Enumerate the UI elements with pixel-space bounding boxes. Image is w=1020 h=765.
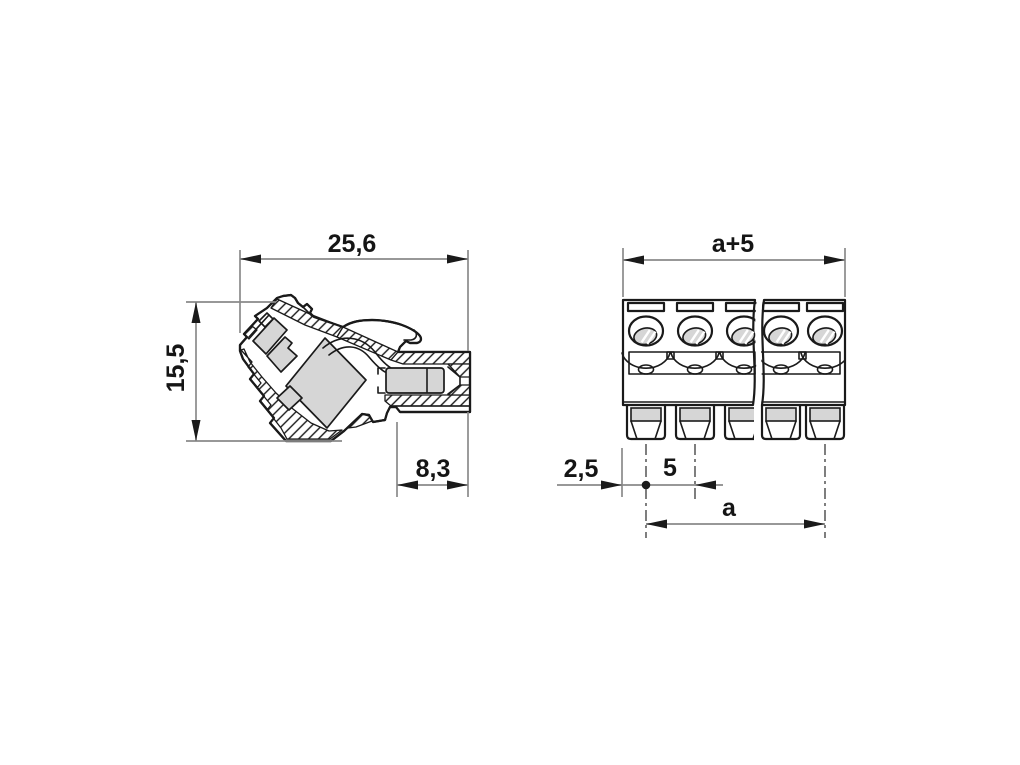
side-view <box>240 295 470 441</box>
contact-gray <box>386 368 444 393</box>
dim-label-plug-depth: 8,3 <box>416 455 451 483</box>
foot-slant <box>810 421 816 439</box>
foot-slant <box>729 421 735 439</box>
dimension-overall-width: a+5 <box>623 230 845 297</box>
foot-slant <box>790 421 796 439</box>
dimension-plug-depth: 8,3 <box>397 422 468 497</box>
arrowhead <box>646 520 667 529</box>
dimension-edge-offset-and-pitch: 2,5 5 <box>557 448 723 497</box>
dim-label-height: 15,5 <box>162 344 190 393</box>
foot-shade <box>631 408 661 421</box>
foot-shade <box>810 408 840 421</box>
dim-label-edge-offset: 2,5 <box>564 455 599 483</box>
dim-label-width: 25,6 <box>328 230 377 258</box>
arrowhead <box>804 520 825 529</box>
foot-slant <box>631 421 637 439</box>
technical-drawing: 25,6 15,5 8,3 a+5 <box>0 0 1020 765</box>
arrowhead <box>240 255 261 264</box>
arrowhead <box>601 481 622 490</box>
foot-slant <box>704 421 710 439</box>
arrowhead <box>623 256 644 265</box>
foot-shade <box>766 408 796 421</box>
front-view <box>622 300 849 439</box>
arrowhead <box>447 255 468 264</box>
foot-shade <box>729 408 759 421</box>
arrowhead <box>824 256 845 265</box>
foot-shade <box>680 408 710 421</box>
arrowhead <box>192 420 201 441</box>
hatch-socket-top-wall <box>391 352 470 364</box>
hatch-socket-bottom-wall <box>385 395 470 406</box>
foot-slant <box>766 421 772 439</box>
dim-label-overall-width: a+5 <box>712 230 755 258</box>
dim-label-pitch: 5 <box>663 454 677 482</box>
dimension-span: a <box>646 494 825 529</box>
foot-slant <box>655 421 661 439</box>
dim-label-span: a <box>722 494 737 522</box>
arrowhead <box>695 481 716 490</box>
arrowhead <box>192 302 201 323</box>
foot-slant <box>680 421 686 439</box>
foot-slant <box>834 421 840 439</box>
datum-dot <box>642 481 651 490</box>
drawing-canvas: 25,6 15,5 8,3 a+5 <box>0 0 1020 765</box>
foot-slant <box>753 421 759 439</box>
